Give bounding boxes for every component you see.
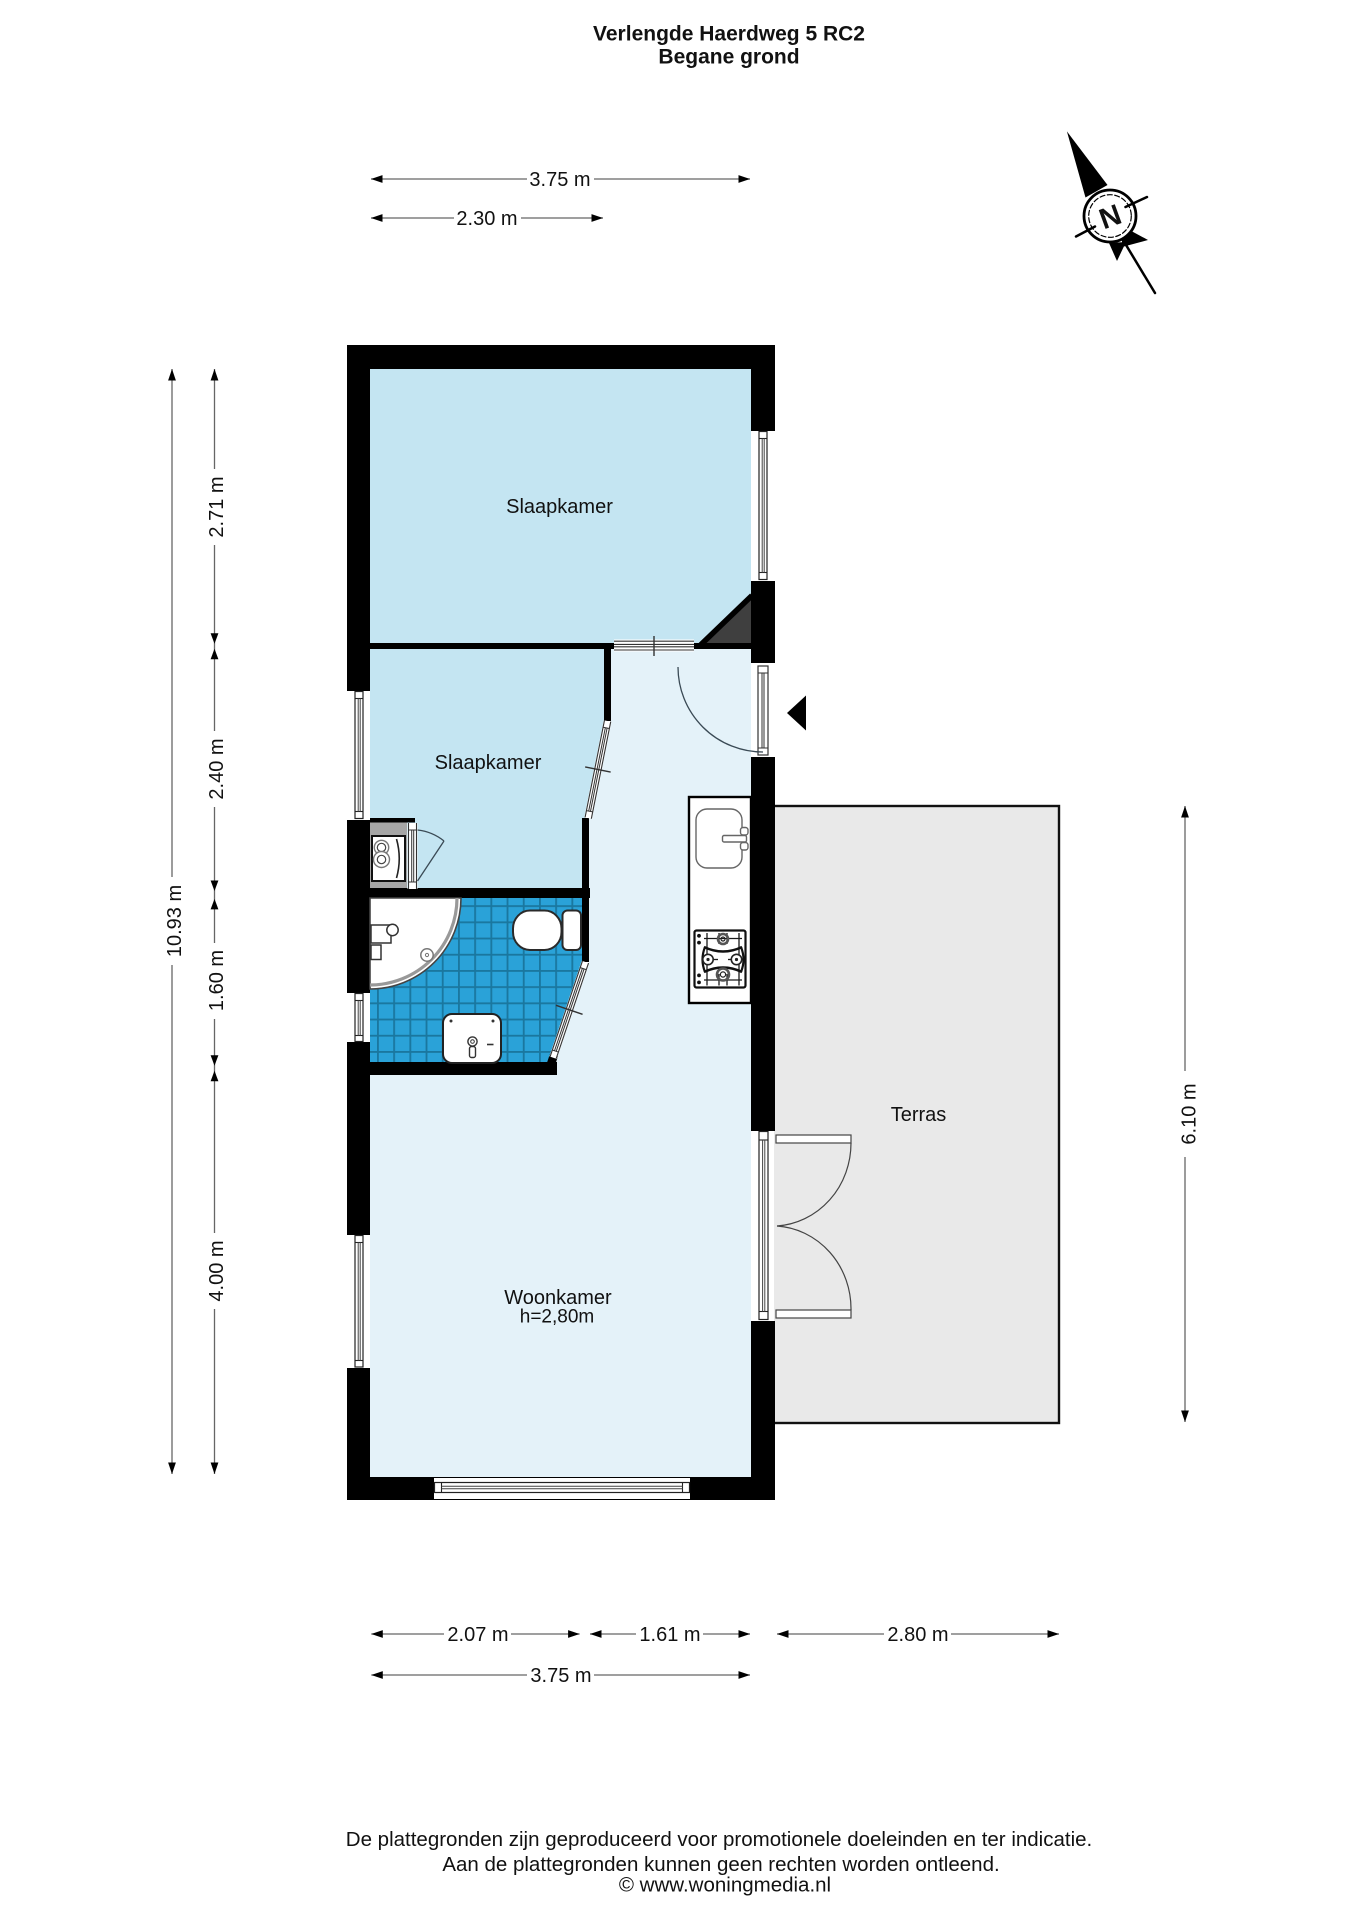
svg-text:2.80 m: 2.80 m xyxy=(887,1624,948,1646)
svg-text:© www.woningmedia.nl: © www.woningmedia.nl xyxy=(619,1874,831,1897)
svg-text:Terras: Terras xyxy=(891,1104,947,1126)
svg-text:h=2,80m: h=2,80m xyxy=(520,1307,594,1328)
svg-text:Begane grond: Begane grond xyxy=(658,46,799,69)
svg-text:De plattegronden zijn geproduc: De plattegronden zijn geproduceerd voor … xyxy=(346,1828,1092,1851)
svg-text:2.30 m: 2.30 m xyxy=(456,208,517,230)
svg-text:10.93 m: 10.93 m xyxy=(164,885,186,957)
svg-text:2.07 m: 2.07 m xyxy=(447,1624,508,1646)
svg-text:2.40 m: 2.40 m xyxy=(206,738,228,799)
svg-text:3.75 m: 3.75 m xyxy=(529,169,590,191)
svg-text:4.00 m: 4.00 m xyxy=(206,1240,228,1301)
svg-text:1.61 m: 1.61 m xyxy=(639,1624,700,1646)
svg-text:6.10 m: 6.10 m xyxy=(1179,1083,1201,1144)
svg-text:2.71 m: 2.71 m xyxy=(206,476,228,537)
svg-text:Slaapkamer: Slaapkamer xyxy=(435,752,542,774)
svg-text:Verlengde Haerdweg 5 RC2: Verlengde Haerdweg 5 RC2 xyxy=(593,23,865,46)
svg-text:Slaapkamer: Slaapkamer xyxy=(506,496,613,518)
svg-text:1.60 m: 1.60 m xyxy=(206,950,228,1011)
svg-text:3.75 m: 3.75 m xyxy=(530,1665,591,1687)
